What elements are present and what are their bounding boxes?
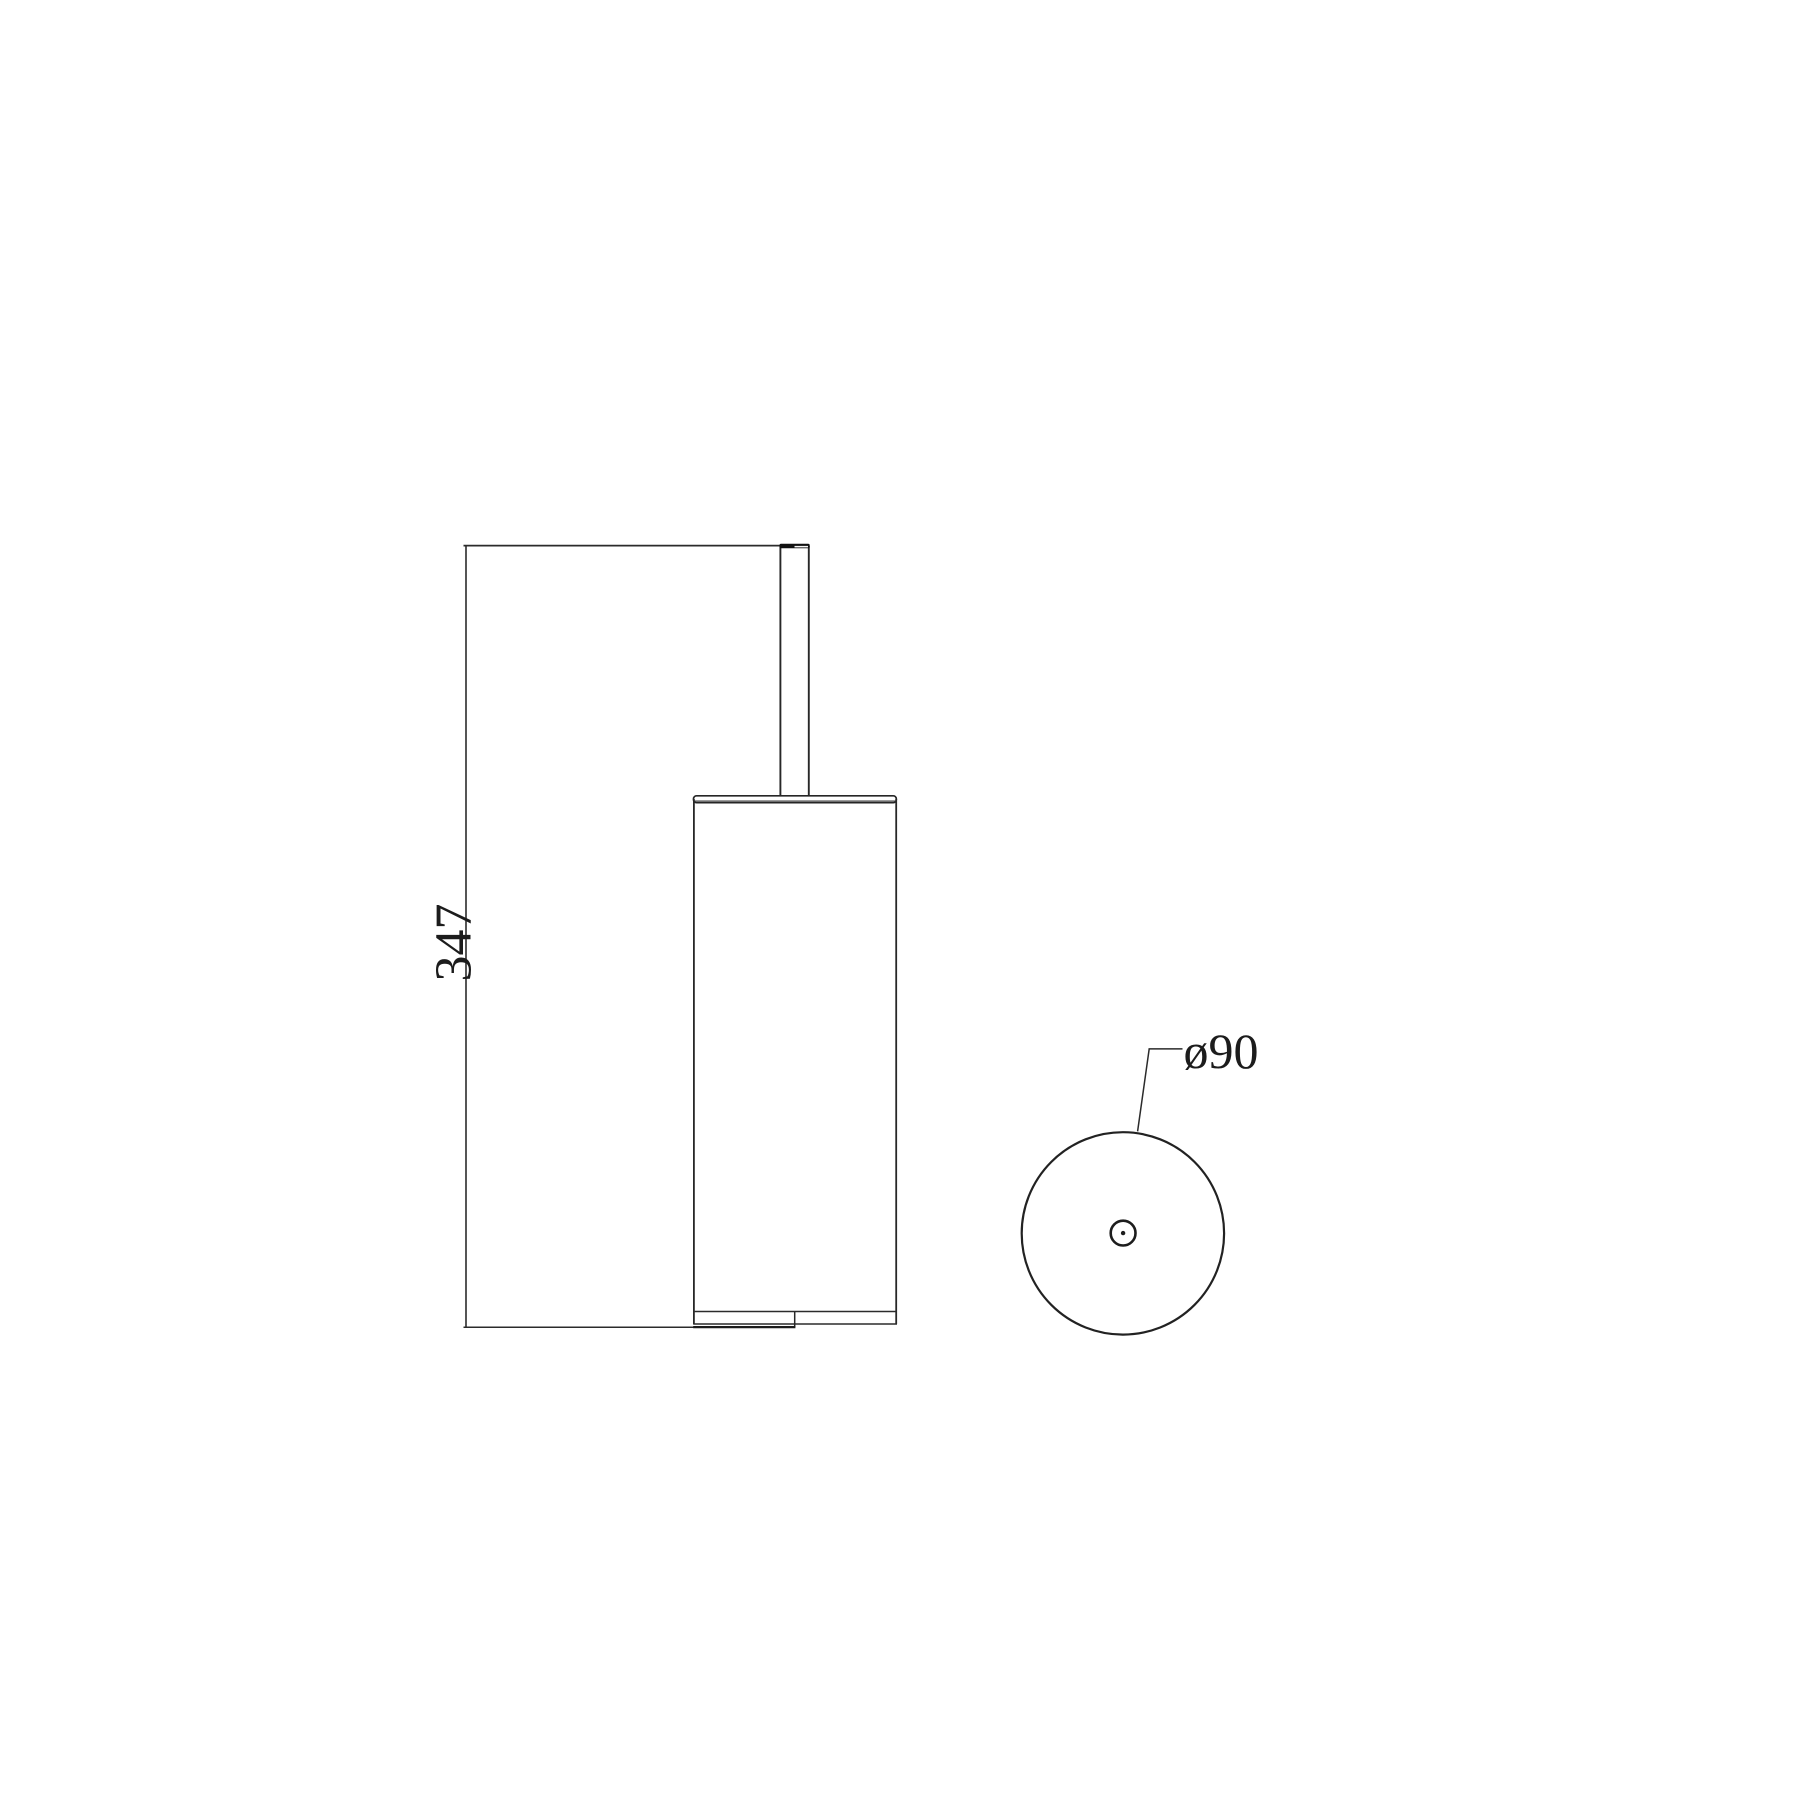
svg-text:ø90: ø90 xyxy=(1184,1023,1259,1079)
svg-text:347: 347 xyxy=(426,904,483,982)
